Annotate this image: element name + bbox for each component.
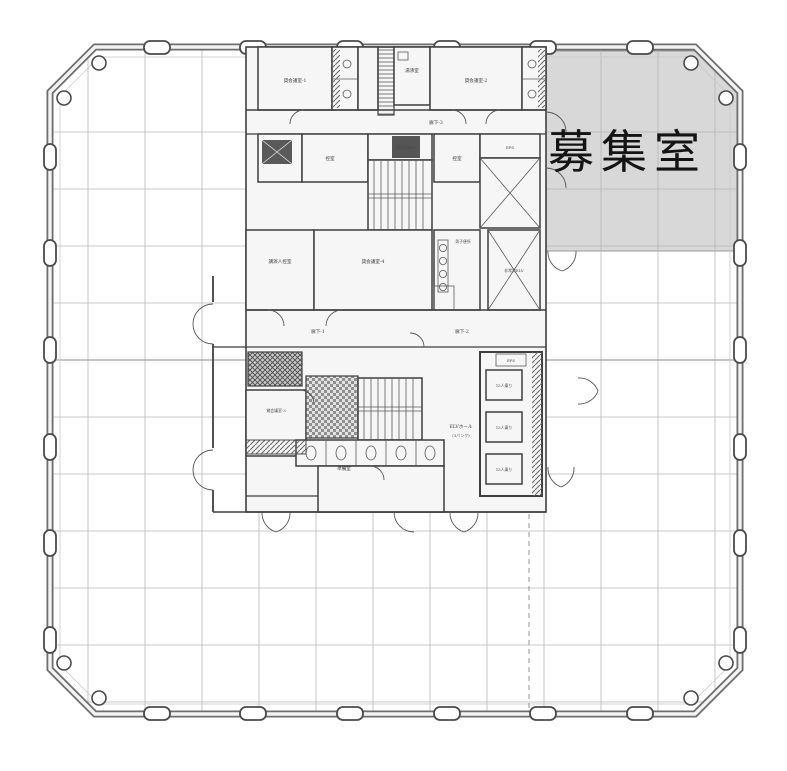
room-waiting1: 控室 bbox=[302, 134, 368, 182]
elevator-hall-label1: ELVホール bbox=[450, 424, 473, 430]
room-waiting1-label: 控室 bbox=[325, 155, 335, 162]
core: 貸会議室-1 湯沸室 貸会議室-2 廊下-3 bbox=[213, 47, 546, 512]
elevator-hall-label2: (3バンク) bbox=[452, 433, 470, 438]
room-meeting4-label: 貸会議室-4 bbox=[362, 258, 385, 265]
toilet-stall-row bbox=[296, 440, 444, 466]
eps-cell: EPS bbox=[480, 134, 540, 158]
corridor3-label: 廊下-3 bbox=[429, 119, 443, 126]
eps-shaft-hatched bbox=[248, 352, 302, 386]
elevator-bank-lower: EPS 15人乗り 15人乗り 15人乗り bbox=[480, 352, 542, 496]
room-meeting2-label: 貸会議室-2 bbox=[465, 77, 488, 84]
room-prep-label: 準備室 bbox=[337, 465, 351, 472]
room-waiting2-label: 控室 bbox=[452, 155, 462, 162]
room-waiting2: 控室 bbox=[434, 134, 480, 182]
counter-fixture-band bbox=[246, 440, 306, 454]
duct-shaft bbox=[378, 47, 394, 115]
elevator-car3-label: 15人乗り bbox=[496, 467, 513, 472]
vacant-room-caption: 募集室 bbox=[548, 125, 707, 179]
room-meeting4 bbox=[314, 230, 432, 310]
top-lobby-cell bbox=[358, 47, 378, 110]
room-speaker-label: 講演人控室 bbox=[269, 258, 292, 265]
corridor1-label: 廊下-1 bbox=[311, 328, 325, 335]
wc-cells-top-left bbox=[332, 47, 358, 110]
elevator-car1-label: 15人乗り bbox=[496, 383, 513, 388]
elevator-bank-eps-label: EPS bbox=[507, 358, 515, 363]
luggage-elevator: 荷物用ELV bbox=[368, 134, 432, 160]
emergency-elevator: 非常用ELV bbox=[488, 230, 540, 310]
mens-toilet: 男子便所 bbox=[434, 230, 480, 310]
elevator-shaft-upper bbox=[480, 158, 540, 228]
eps-label: EPS bbox=[506, 145, 514, 150]
room-meeting1-label: 貸会議室-1 bbox=[284, 77, 307, 84]
room-kitchenette: 湯沸室 bbox=[394, 47, 430, 105]
floor-plan-drawing: 貸会議室-1 湯沸室 貸会議室-2 廊下-3 bbox=[0, 0, 787, 771]
mens-toilet-label: 男子便所 bbox=[455, 239, 471, 244]
machine-room bbox=[258, 134, 302, 182]
luggage-elevator-label: 荷物用ELV bbox=[396, 145, 416, 150]
room-meeting3-label: 貸会議室-3 bbox=[266, 408, 286, 413]
emergency-elevator-label: 非常用ELV bbox=[504, 268, 524, 273]
restroom-tile-area bbox=[306, 376, 358, 438]
stair-lower bbox=[358, 378, 422, 440]
stair-upper bbox=[368, 160, 432, 230]
wc-cells-top-right bbox=[522, 47, 546, 110]
elevator-car2-label: 15人乗り bbox=[496, 425, 513, 430]
room-kitchenette-label: 湯沸室 bbox=[405, 67, 419, 74]
room-speaker bbox=[246, 230, 314, 310]
corridor2-label: 廊下-2 bbox=[455, 328, 469, 335]
floor-plan-page: 貸会議室-1 湯沸室 貸会議室-2 廊下-3 bbox=[0, 0, 787, 771]
